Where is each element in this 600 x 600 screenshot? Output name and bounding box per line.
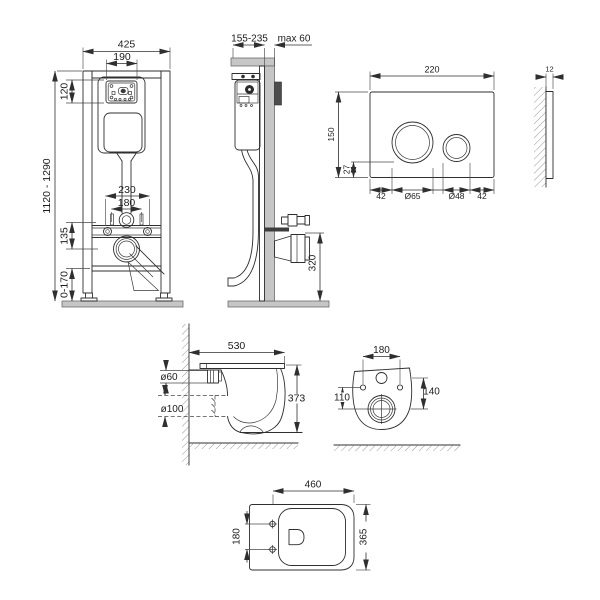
dim-bowl-height: 373 — [288, 393, 306, 405]
dim-inlet-diameter: ø60 — [160, 372, 178, 383]
dim-margin-right: 42 — [477, 191, 487, 201]
dim-big-button: Ø65 — [404, 191, 420, 201]
dim-bolt-outer: 230 — [118, 184, 136, 196]
dim-plate-width: 220 — [424, 65, 439, 75]
bowl-rear-view: 180 110 140 — [333, 345, 460, 451]
dim-bolt-spacing: 180 — [232, 528, 243, 545]
fixing-bolt-left — [104, 228, 112, 236]
dim-bolt-spacing: 180 — [373, 345, 390, 356]
dim-outlet-drop: 110 — [334, 393, 350, 404]
drain-elbow — [275, 235, 310, 263]
small-flush-button — [443, 135, 470, 162]
dim-margin-left: 42 — [376, 191, 386, 201]
dim-foot-adjust: 0-170 — [59, 271, 71, 298]
dim-bowl-depth: 530 — [228, 340, 246, 352]
bolt-hole-right — [397, 385, 402, 390]
dim-frame-depth: 155-235 — [231, 34, 268, 45]
dim-plate-thickness: 12 — [545, 65, 553, 74]
floor-hatch — [189, 443, 298, 449]
dim-plate-height: 150 — [326, 127, 336, 141]
floor-strip — [228, 301, 329, 307]
dim-frame-height-range: 1120 - 1290 — [41, 158, 53, 213]
bowl-outline — [250, 505, 355, 571]
installation-diagram: 425 190 1120 - 1290 120 230 180 135 0-17… — [0, 0, 600, 600]
ceiling-strip — [231, 58, 275, 66]
bowl-side-view: 530 ø60 ø100 373 — [158, 324, 305, 465]
bolt-hole-left — [360, 385, 365, 390]
dim-inlet-drop: 140 — [423, 387, 440, 398]
dim-frame-width: 425 — [118, 39, 136, 51]
bowl-profile — [221, 370, 228, 396]
dim-button-offset: 27 — [342, 165, 352, 175]
dim-bolt-inner: 180 — [118, 197, 136, 209]
wall-section — [265, 66, 275, 301]
fixing-bolt-right — [144, 228, 152, 236]
flush-plate-front-view: 220 150 27 42 Ø65 Ø48 42 — [326, 65, 494, 202]
dim-cistern-width: 190 — [113, 51, 131, 63]
inlet-hole — [376, 373, 387, 384]
frame-side-view: 155-235 max 60 320 — [228, 34, 329, 308]
floor-hatch — [334, 445, 460, 451]
wall-hatch — [182, 324, 189, 465]
cistern-side — [235, 80, 260, 150]
dim-outlet-height: 320 — [308, 254, 319, 271]
frame-front-view: 425 190 1120 - 1290 120 230 180 135 0-17… — [41, 39, 183, 308]
technical-drawing-page: 425 190 1120 - 1290 120 230 180 135 0-17… — [0, 0, 600, 600]
big-flush-button — [392, 122, 433, 163]
flush-plate-side-view: 12 — [534, 65, 563, 188]
flush-opening — [289, 530, 304, 545]
bowl-bottom-view: 460 180 365 — [232, 480, 372, 571]
dim-small-button: Ø48 — [448, 191, 464, 201]
inlet-connector — [208, 370, 222, 383]
flush-plate-edge — [275, 82, 282, 105]
dim-outlet-diameter: ø100 — [161, 404, 184, 415]
dim-access-height: 120 — [59, 83, 71, 101]
dim-max-offset: max 60 — [278, 34, 311, 45]
dim-bowl-width: 365 — [359, 528, 370, 545]
drain-outlet — [114, 236, 140, 262]
floor-strip — [62, 301, 183, 307]
outlet-spigot — [212, 396, 228, 417]
access-window — [106, 81, 137, 103]
threaded-rod — [265, 228, 289, 232]
flush-plate-edge — [546, 92, 553, 179]
wall-hatch — [534, 87, 546, 187]
water-inlet-elbow — [282, 215, 310, 227]
dim-bowl-length: 460 — [305, 480, 322, 491]
flush-plate — [370, 92, 494, 178]
toilet-seat-lid — [200, 364, 285, 369]
dim-outlet-offset: 135 — [59, 227, 71, 245]
